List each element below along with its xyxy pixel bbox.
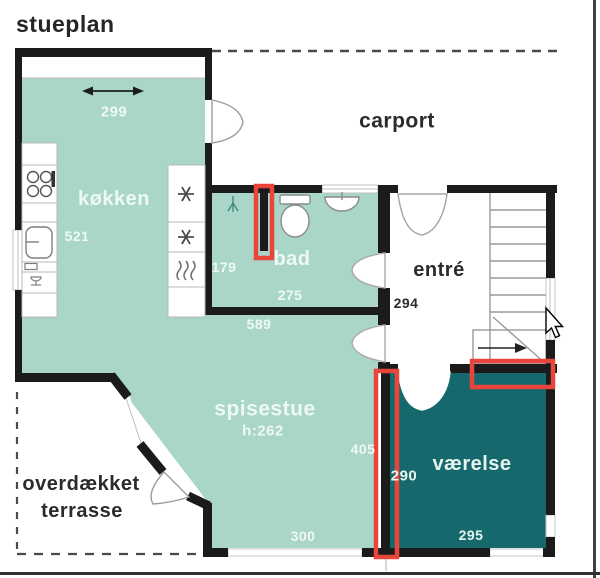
door-entry-front — [398, 194, 447, 235]
toilet-icon — [280, 195, 310, 237]
staircase — [473, 193, 546, 366]
screen-edge-bottom — [0, 572, 600, 575]
room-label-terrace-line2: terrasse — [41, 501, 123, 521]
window-bedroom-bottom — [490, 549, 545, 556]
room-label-entry: entré — [413, 260, 464, 280]
room-label-bathroom: bad — [273, 249, 310, 269]
room-label-kitchen: køkken — [78, 189, 150, 209]
room-label-carport: carport — [359, 111, 435, 132]
dim-entry-width: 294 — [394, 296, 419, 310]
stairs-arrow-icon — [478, 343, 527, 353]
dim-kitchen-depth: 521 — [65, 229, 90, 243]
door-dining-to-terrace — [151, 472, 189, 504]
room-label-terrace-line1: overdækket — [22, 474, 139, 494]
window-bedroom-right — [546, 515, 555, 537]
dim-bedroom-left: 290 — [391, 469, 418, 484]
room-label-dining: spisestue — [214, 399, 315, 420]
appliance-column — [168, 165, 205, 317]
room-label-bedroom: værelse — [432, 454, 511, 474]
bathroom-wall-stub — [260, 193, 268, 251]
floor-plan-screenshot: stueplan køkken 299 521 bad 179 275 589 … — [0, 0, 600, 578]
dim-dining-top: 589 — [247, 317, 272, 331]
sink-icon — [26, 227, 52, 258]
dim-bathroom-bottom: 275 — [278, 288, 303, 302]
dim-dining-bottom: 300 — [291, 529, 316, 543]
dim-bathroom-left: 179 — [212, 260, 237, 274]
dim-kitchen-width: 299 — [101, 105, 128, 120]
page-title: stueplan — [16, 13, 115, 36]
kitchen-counter-top — [22, 57, 205, 78]
window-dining-bottom — [228, 549, 362, 556]
dim-dining-right: 405 — [351, 442, 376, 456]
window-bathroom-top — [322, 185, 378, 193]
door-kitchen-to-carport — [212, 100, 243, 143]
dim-dining-ceiling: h:262 — [242, 424, 284, 439]
dim-bedroom-bottom: 295 — [459, 528, 484, 542]
screen-edge-right — [593, 0, 596, 578]
